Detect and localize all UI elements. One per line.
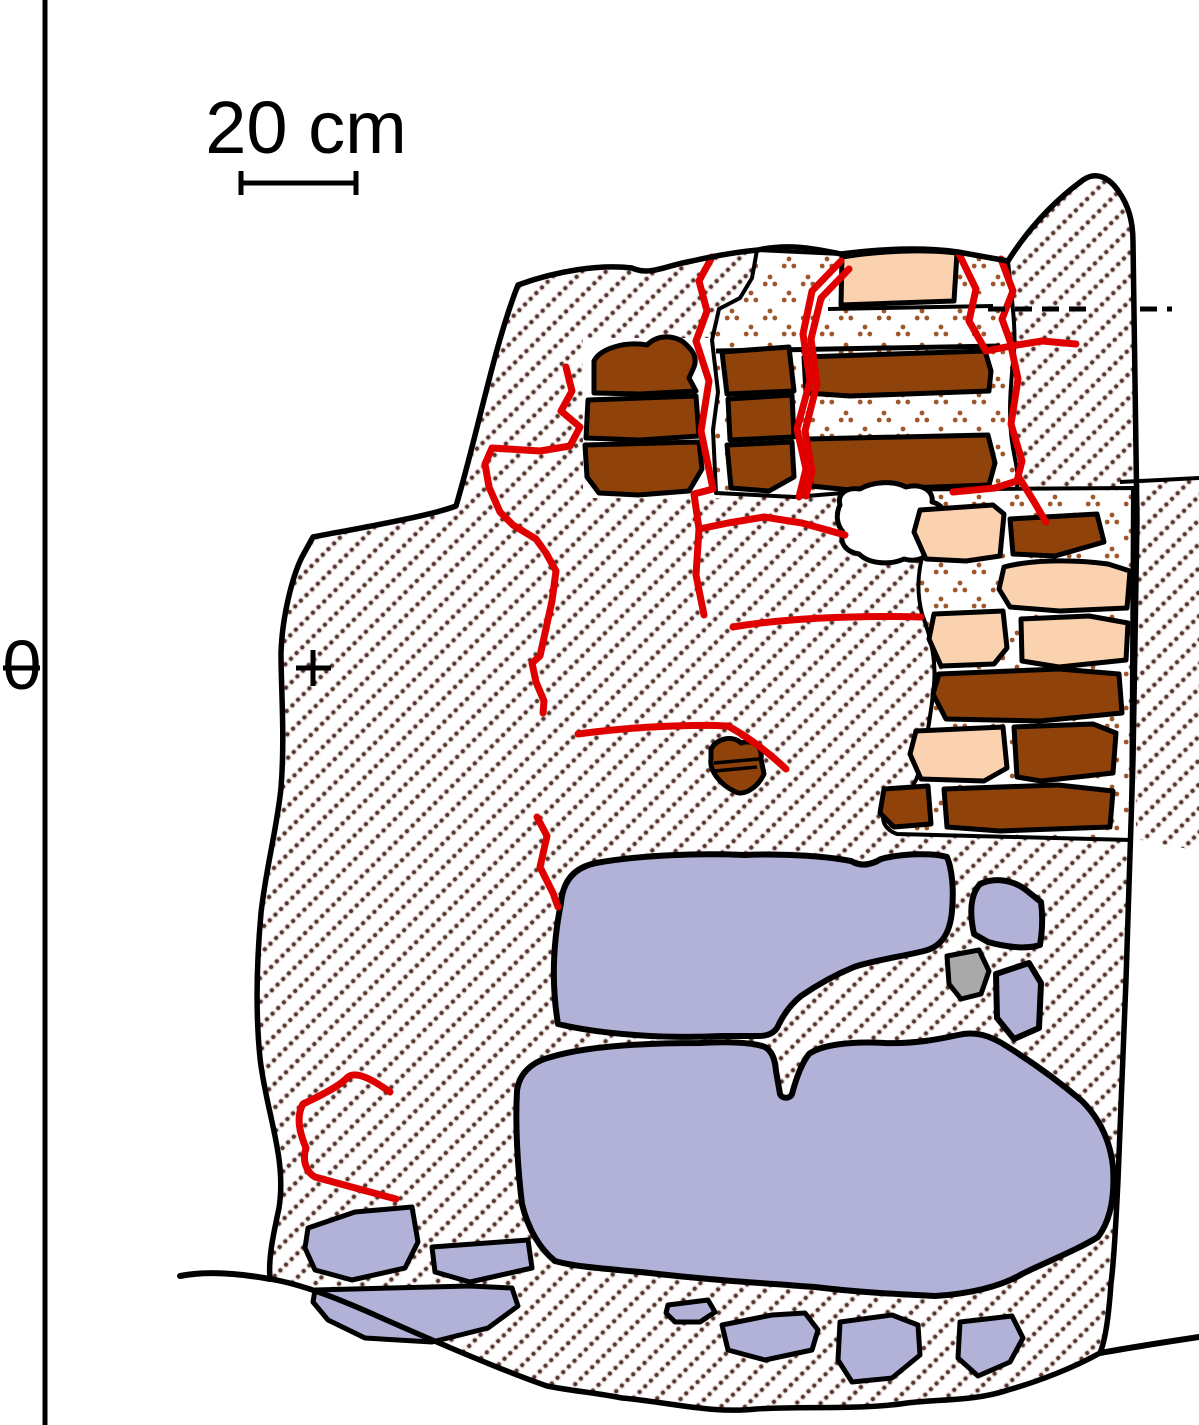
- brick-left-2: [586, 396, 699, 440]
- purple-small-5: [722, 1313, 818, 1360]
- brick-col-4: [880, 786, 931, 827]
- brick-col-5: [944, 785, 1113, 831]
- brick-col-2: [933, 669, 1122, 721]
- wall-section-figure: 0 20 cm: [0, 0, 1199, 1425]
- section-drawing-page: 0 20 cm: [0, 0, 1199, 1425]
- gray-stone: [947, 950, 989, 999]
- wall-right-extension-hatch: [1135, 479, 1199, 851]
- purple-stone-large-2: [516, 1034, 1113, 1297]
- brick-mid-3: [727, 442, 794, 491]
- peach-stone-2: [999, 561, 1130, 611]
- peach-stone-5: [910, 727, 1007, 781]
- scale-bar-line: [241, 171, 356, 195]
- brick-wide-a: [804, 351, 991, 396]
- brick-wide-b: [808, 435, 995, 490]
- scale-bar: 20 cm: [205, 86, 407, 195]
- brick-left-3: [585, 442, 702, 495]
- peach-stone-4: [1021, 616, 1128, 667]
- ground-line-left: [180, 1273, 270, 1279]
- ground-line-right: [1100, 1337, 1199, 1353]
- brick-mid-2: [728, 395, 794, 440]
- brick-mid-1: [722, 347, 794, 394]
- scale-bar-label: 20 cm: [205, 86, 407, 169]
- brick-col-3: [1014, 724, 1116, 781]
- purple-small-4: [666, 1300, 715, 1322]
- peach-stone-3: [929, 611, 1007, 666]
- peach-block-top: [841, 251, 957, 305]
- purple-fragment-b: [996, 963, 1041, 1039]
- peach-stone-1: [914, 505, 1004, 561]
- datum-label: 0: [3, 626, 42, 704]
